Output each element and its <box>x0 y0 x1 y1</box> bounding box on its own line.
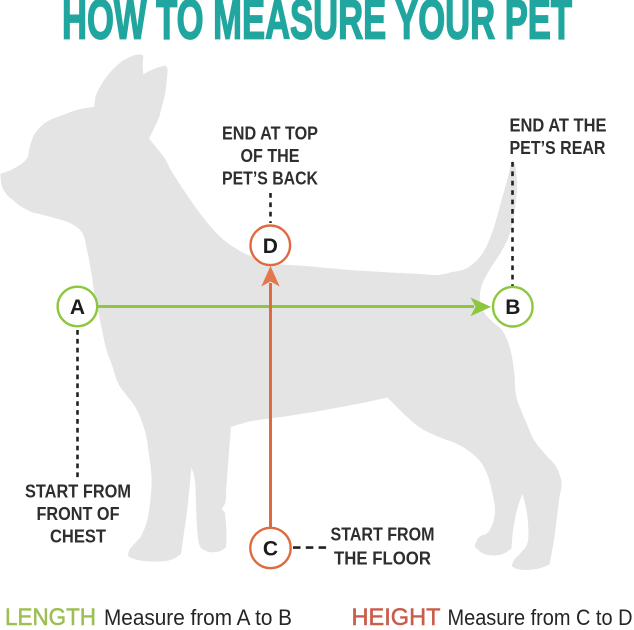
svg-text:A: A <box>70 296 85 319</box>
svg-text:END AT TOP: END AT TOP <box>222 124 318 144</box>
svg-text:Measure from C to D: Measure from C to D <box>448 605 633 630</box>
svg-text:OF THE: OF THE <box>241 146 300 166</box>
svg-text:Measure from A to B: Measure from A to B <box>104 605 292 630</box>
svg-text:THE FLOOR: THE FLOOR <box>334 549 431 569</box>
svg-text:END AT THE: END AT THE <box>510 116 607 136</box>
svg-text:LENGTH: LENGTH <box>5 604 96 630</box>
svg-text:PET’S REAR: PET’S REAR <box>510 138 606 158</box>
svg-text:D: D <box>263 235 278 258</box>
svg-text:START FROM: START FROM <box>331 525 435 545</box>
svg-text:START FROM: START FROM <box>25 482 131 502</box>
svg-text:PET’S BACK: PET’S BACK <box>222 169 318 189</box>
svg-text:B: B <box>505 296 520 319</box>
svg-text:HOW TO MEASURE YOUR PET: HOW TO MEASURE YOUR PET <box>62 0 572 50</box>
svg-text:FRONT OF: FRONT OF <box>37 504 120 524</box>
svg-text:CHEST: CHEST <box>50 527 106 547</box>
svg-text:C: C <box>263 538 278 561</box>
svg-text:HEIGHT: HEIGHT <box>352 604 441 630</box>
